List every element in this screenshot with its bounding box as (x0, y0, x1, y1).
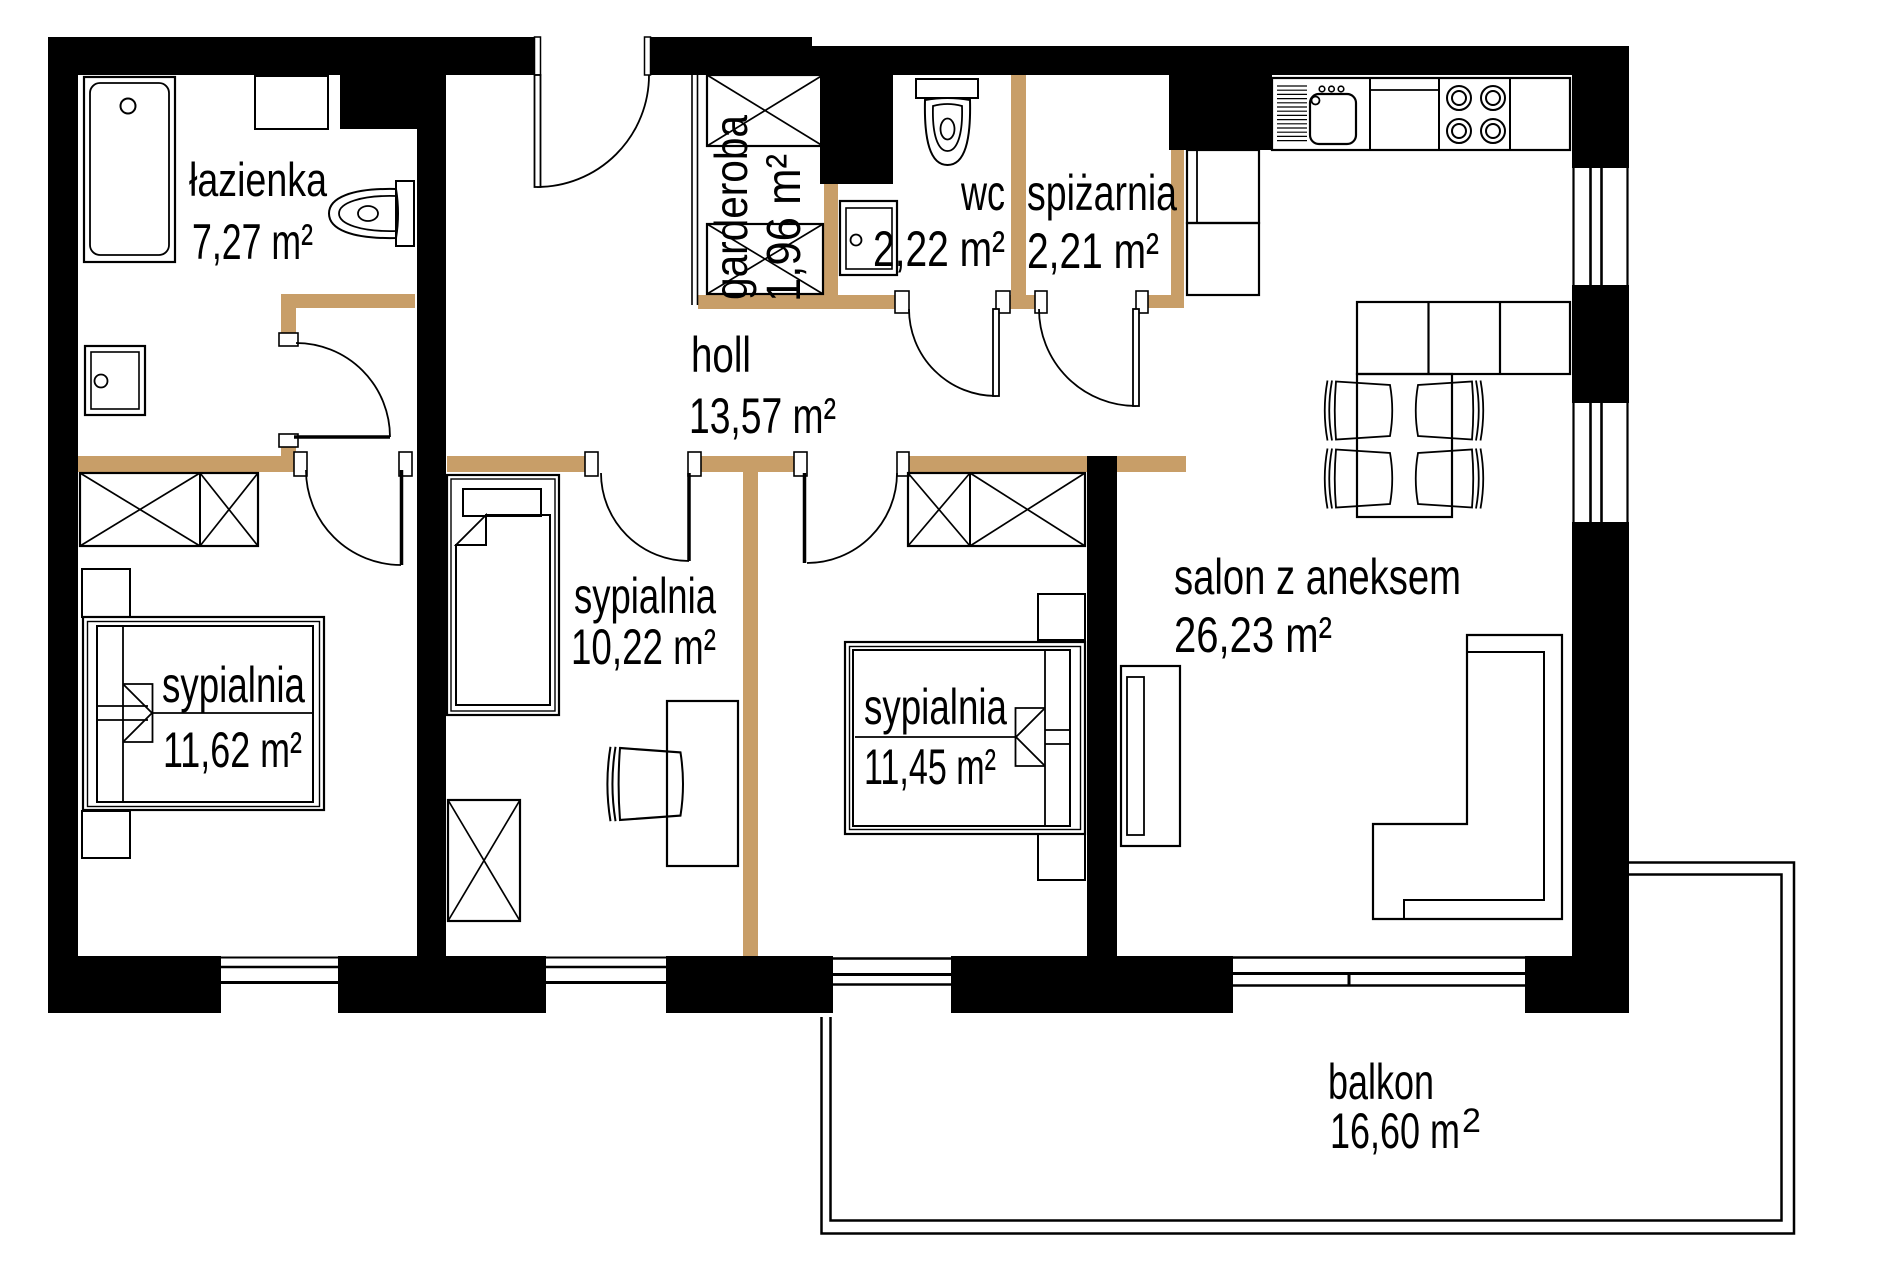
svg-text:2,22 m²: 2,22 m² (873, 221, 1005, 277)
svg-text:2: 2 (1462, 1102, 1481, 1140)
svg-text:balkon: balkon (1328, 1054, 1434, 1110)
svg-text:11,45 m²: 11,45 m² (864, 739, 996, 795)
svg-text:16,60 m: 16,60 m (1330, 1103, 1460, 1159)
svg-text:2,21 m²: 2,21 m² (1027, 223, 1159, 279)
svg-text:13,57 m²: 13,57 m² (689, 388, 836, 444)
svg-text:spiżarnia: spiżarnia (1027, 165, 1177, 221)
svg-text:garderoba: garderoba (705, 115, 757, 300)
svg-text:wc: wc (960, 165, 1005, 221)
svg-text:7,27 m²: 7,27 m² (192, 214, 313, 270)
svg-text:1,96 m²: 1,96 m² (758, 154, 811, 302)
svg-text:sypialnia: sypialnia (162, 657, 305, 713)
svg-text:sypialnia: sypialnia (574, 568, 716, 624)
svg-text:sypialnia: sypialnia (864, 679, 1007, 735)
svg-text:11,62 m²: 11,62 m² (163, 722, 302, 778)
svg-text:26,23 m²: 26,23 m² (1174, 607, 1332, 663)
svg-text:łazienka: łazienka (189, 153, 328, 206)
svg-text:10,22 m²: 10,22 m² (571, 619, 716, 675)
svg-text:salon z aneksem: salon z aneksem (1174, 549, 1461, 605)
svg-text:holl: holl (691, 327, 751, 383)
